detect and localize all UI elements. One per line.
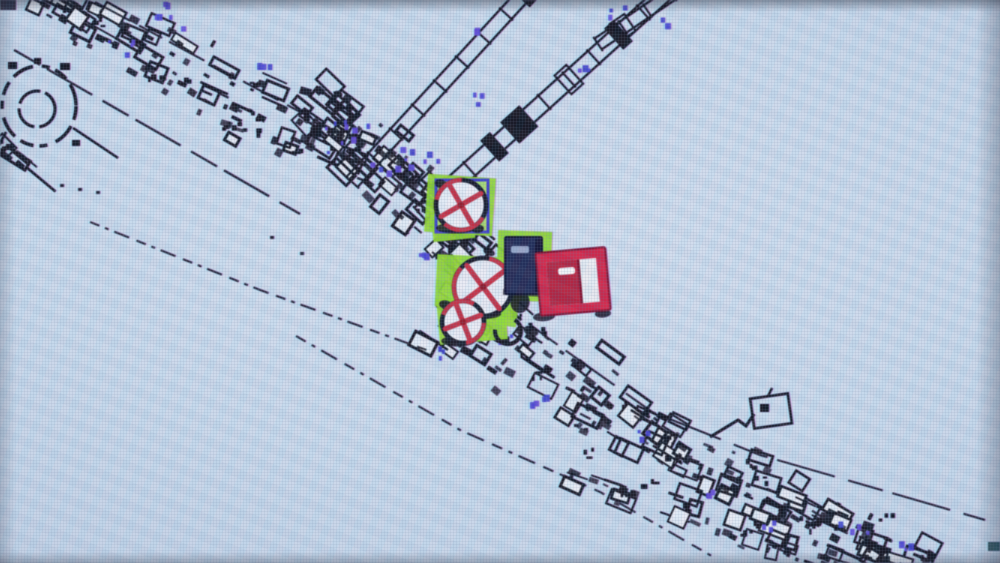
monitor-screen-photo bbox=[0, 0, 1000, 563]
red-door-icon[interactable] bbox=[527, 247, 611, 324]
status-icons-layer bbox=[0, 0, 1000, 563]
schematic-layer bbox=[0, 0, 1000, 563]
